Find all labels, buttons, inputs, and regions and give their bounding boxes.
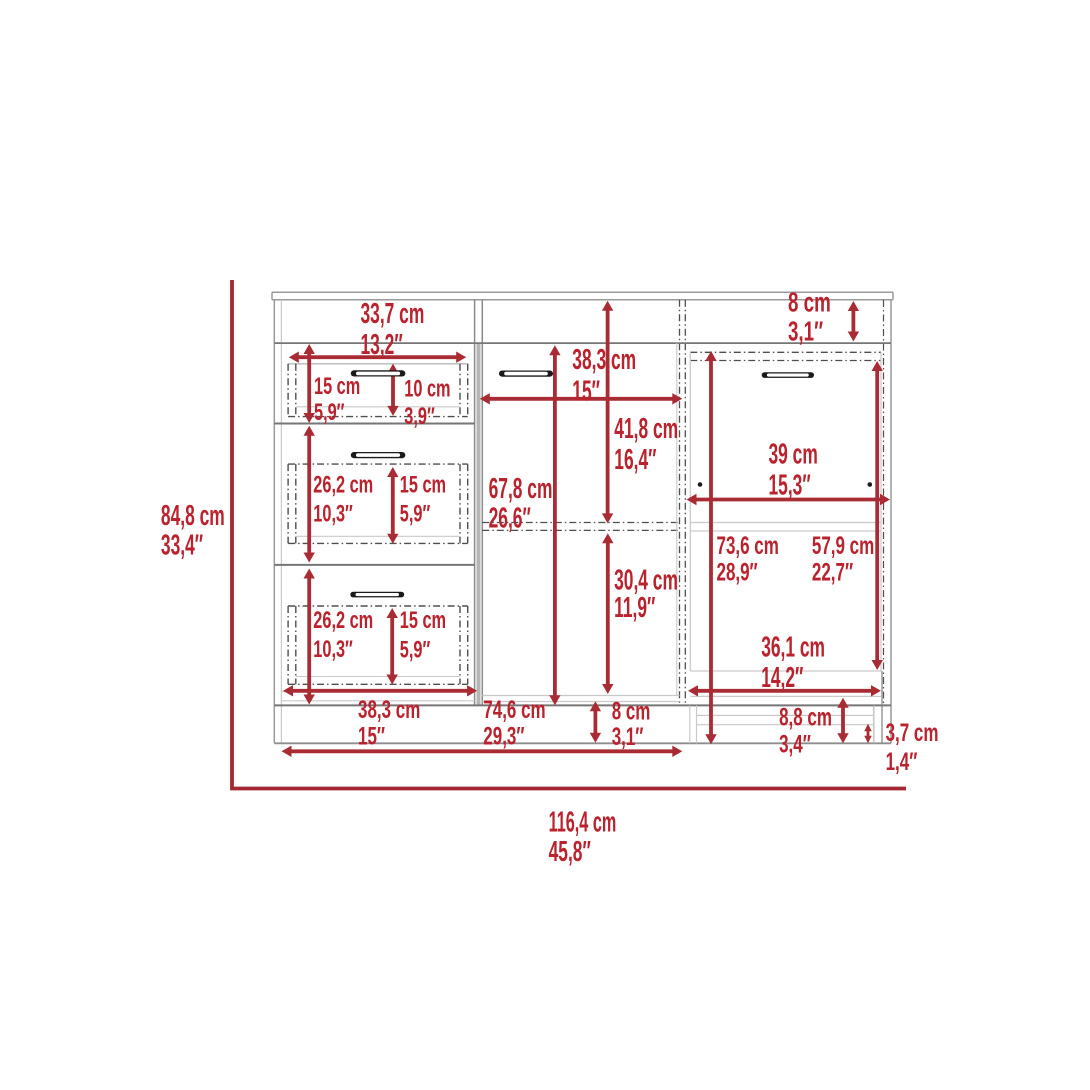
svg-text:8 cm: 8 cm: [788, 287, 831, 319]
svg-text:15 cm: 15 cm: [400, 607, 446, 634]
svg-text:3,9″: 3,9″: [404, 403, 435, 430]
svg-text:74,6 cm: 74,6 cm: [483, 696, 545, 724]
svg-text:8,8 cm: 8,8 cm: [779, 703, 832, 731]
svg-text:38,3 cm: 38,3 cm: [358, 696, 420, 724]
svg-text:26,2 cm: 26,2 cm: [313, 472, 373, 499]
svg-text:11,9″: 11,9″: [614, 591, 656, 624]
svg-text:15,3″: 15,3″: [769, 469, 812, 502]
svg-text:3,1″: 3,1″: [612, 723, 644, 751]
svg-text:26,6″: 26,6″: [489, 502, 532, 535]
svg-text:5,9″: 5,9″: [314, 399, 345, 426]
svg-text:15 cm: 15 cm: [314, 373, 360, 400]
svg-text:13,2″: 13,2″: [361, 329, 404, 362]
svg-text:116,4 cm: 116,4 cm: [549, 805, 617, 837]
svg-text:29,3″: 29,3″: [483, 722, 524, 750]
svg-text:22,7″: 22,7″: [812, 558, 853, 586]
svg-text:33,4″: 33,4″: [161, 529, 204, 562]
svg-text:15 cm: 15 cm: [400, 472, 446, 499]
svg-text:8 cm: 8 cm: [612, 697, 651, 725]
svg-text:16,4″: 16,4″: [614, 444, 657, 477]
svg-text:41,8 cm: 41,8 cm: [614, 413, 678, 446]
svg-text:26,2 cm: 26,2 cm: [313, 607, 373, 634]
svg-text:3,7 cm: 3,7 cm: [886, 719, 939, 747]
svg-text:15″: 15″: [358, 722, 385, 750]
svg-text:10,3″: 10,3″: [313, 500, 353, 527]
svg-text:84,8 cm: 84,8 cm: [161, 500, 225, 533]
svg-text:10,3″: 10,3″: [313, 636, 353, 663]
svg-text:5,9″: 5,9″: [400, 500, 431, 527]
svg-text:39 cm: 39 cm: [769, 438, 818, 471]
svg-text:1,4″: 1,4″: [886, 748, 918, 776]
svg-text:14,2″: 14,2″: [761, 661, 804, 694]
svg-text:3,1″: 3,1″: [788, 316, 823, 348]
svg-text:67,8 cm: 67,8 cm: [489, 473, 553, 506]
svg-text:57,9 cm: 57,9 cm: [812, 532, 874, 560]
svg-text:15″: 15″: [572, 375, 600, 408]
svg-text:33,7 cm: 33,7 cm: [361, 298, 425, 331]
svg-text:38,3 cm: 38,3 cm: [572, 343, 636, 376]
svg-text:3,4″: 3,4″: [779, 730, 811, 758]
svg-text:5,9″: 5,9″: [400, 637, 431, 664]
svg-text:45,8″: 45,8″: [549, 835, 592, 868]
svg-text:73,6 cm: 73,6 cm: [717, 532, 779, 560]
svg-text:10 cm: 10 cm: [404, 375, 450, 402]
svg-text:28,9″: 28,9″: [717, 558, 758, 586]
svg-text:36,1 cm: 36,1 cm: [761, 631, 825, 664]
